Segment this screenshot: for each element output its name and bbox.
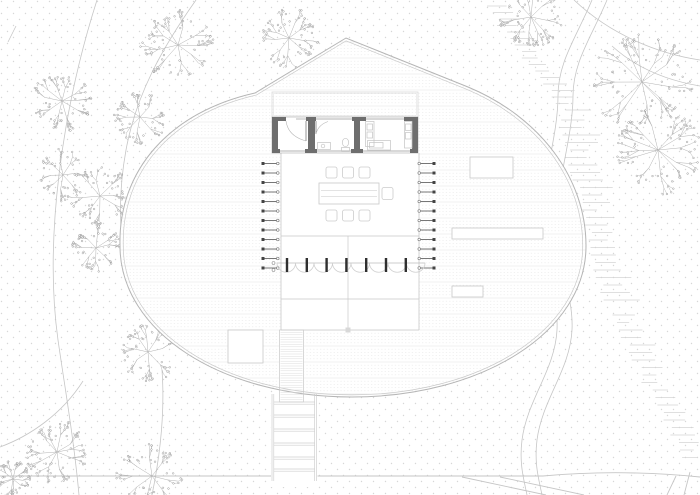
tree-dot (593, 85, 595, 87)
tree-dot (104, 173, 106, 175)
tick-circle-right (418, 200, 421, 203)
tree-dot (77, 436, 79, 438)
bench (452, 286, 483, 297)
tree-dot (159, 116, 161, 118)
tick-circle-right (418, 162, 421, 165)
tree-dot (162, 452, 164, 454)
tree-dot (132, 365, 134, 367)
tree-dot (150, 375, 152, 377)
tree-dot (137, 142, 139, 144)
tree-dot (48, 429, 50, 431)
tree-dot (121, 101, 123, 103)
tree-dot (99, 259, 101, 261)
tree-dot (158, 47, 160, 49)
tree-dot (657, 54, 659, 56)
building-wall (305, 149, 317, 153)
tree-dot (689, 151, 691, 153)
tree-dot (48, 480, 50, 482)
tree-dot (305, 40, 307, 42)
tree-dot (27, 485, 29, 487)
tree-dot (21, 484, 23, 486)
tree-dot (37, 475, 39, 477)
tick-square-right (433, 248, 436, 251)
tree-dot (621, 151, 623, 153)
tree-dot (109, 238, 111, 240)
tree-dot (691, 88, 693, 90)
tree-dot (668, 88, 670, 90)
tree-dot (689, 163, 691, 165)
building-wall (272, 117, 278, 153)
tree-dot (91, 223, 93, 225)
tree-dot (693, 127, 695, 129)
tree-dot (92, 265, 94, 267)
tree-dot (659, 47, 661, 49)
tree-dot (515, 31, 517, 33)
tree-dot (21, 475, 23, 477)
tree-dot (517, 21, 519, 23)
tree-dot (145, 375, 147, 377)
tree-dot (64, 429, 66, 431)
tree-dot (43, 113, 45, 115)
tree-dot (81, 445, 83, 447)
tree-dot (281, 9, 283, 11)
tree-dot (82, 463, 84, 465)
tree-dot (72, 128, 74, 130)
tree-dot (542, 36, 544, 38)
dining-chair (343, 167, 354, 178)
tree-dot (690, 89, 692, 91)
tree-dot (601, 81, 603, 83)
tree-dot (686, 128, 688, 130)
tree-dot (163, 456, 165, 458)
tree-dot (677, 170, 679, 172)
tree-dot (40, 179, 42, 181)
tick-circle-left (277, 229, 280, 232)
tree-dot (81, 87, 83, 89)
tree-dot (148, 493, 150, 495)
tree-dot (686, 141, 688, 143)
tree-dot (621, 157, 623, 159)
tree-dot (204, 43, 206, 45)
tree-dot (519, 11, 521, 13)
tree-dot (51, 439, 53, 441)
tree-dot (628, 122, 630, 124)
tree-dot (685, 124, 687, 126)
tree-dot (123, 478, 125, 480)
tick-square-left (262, 191, 265, 194)
tree-dot (78, 431, 80, 433)
tree-dot (51, 79, 53, 81)
tree-dot (626, 132, 628, 134)
tree-dot (19, 476, 21, 478)
tree-dot (47, 481, 49, 483)
tree-dot (167, 371, 169, 373)
tree-dot (670, 126, 672, 128)
tree-dot (181, 11, 183, 13)
tree-dot (142, 42, 144, 44)
tick-circle-left (277, 219, 280, 222)
tree-dot (71, 203, 73, 205)
tree-dot (627, 153, 629, 155)
canopy-post (365, 258, 367, 272)
tree-dot (283, 11, 285, 13)
tree-dot (30, 450, 32, 452)
tree-dot (202, 40, 204, 42)
tree-dot (29, 477, 31, 479)
tree-dot (117, 114, 119, 116)
tree-dot (542, 44, 544, 46)
tree-dot (281, 14, 283, 16)
tree-dot (518, 37, 520, 39)
tree-dot (508, 7, 510, 9)
tree-dot (153, 68, 155, 70)
tree-dot (26, 472, 28, 474)
tree-dot (278, 11, 280, 13)
tree-dot (628, 42, 630, 44)
tree-dot (63, 480, 65, 482)
tree-dot (532, 43, 534, 45)
tree-dot (88, 205, 90, 207)
tree-dot (83, 108, 85, 110)
tree-dot (128, 109, 130, 111)
bench (470, 157, 513, 178)
tree-dot (84, 237, 86, 239)
tree-dot (619, 162, 621, 164)
tree-dot (117, 185, 119, 187)
tree-dot (604, 50, 606, 52)
tree-dot (212, 39, 214, 41)
tree-dot (59, 427, 61, 429)
tree-dot (132, 371, 134, 373)
tree-dot (102, 233, 104, 235)
tree-dot (311, 45, 313, 47)
tree-dot (116, 194, 118, 196)
tree-dot (34, 87, 36, 89)
dining-table (319, 183, 379, 204)
tree-dot (52, 163, 54, 165)
tree-dot (676, 124, 678, 126)
building-wall (272, 149, 280, 153)
tree-dot (622, 38, 624, 40)
tree-dot (278, 30, 280, 32)
tree-dot (617, 142, 619, 144)
tree-dot (305, 52, 307, 54)
tree-dot (148, 379, 150, 381)
tree-dot (87, 114, 89, 116)
tree-dot (68, 477, 70, 479)
tree-dot (298, 17, 300, 19)
tree-dot (60, 119, 62, 121)
tick-square-left (262, 172, 265, 175)
tree-dot (74, 98, 76, 100)
tree-dot (197, 44, 199, 46)
tree-dot (140, 46, 142, 48)
tree-dot (158, 339, 160, 341)
tree-dot (39, 431, 41, 433)
tree-dot (630, 130, 632, 132)
tree-dot (168, 18, 170, 20)
tree-dot (123, 105, 125, 107)
tree-dot (272, 25, 274, 27)
tree-dot (141, 456, 143, 458)
tree-dot (129, 334, 131, 336)
tree-dot (674, 127, 676, 129)
tree-dot (113, 114, 115, 116)
tree-dot (110, 263, 112, 265)
tree-dot (662, 193, 664, 195)
tree-dot (166, 457, 168, 459)
tree-dot (142, 378, 144, 380)
tree-dot (88, 208, 90, 210)
tree-dot (630, 121, 632, 123)
tree-dot (634, 143, 636, 145)
tree-dot (165, 456, 167, 458)
tick-circle-right (418, 229, 421, 232)
tree-dot (93, 208, 95, 210)
tree-dot (169, 343, 171, 345)
tree-dot (59, 423, 61, 425)
tree-dot (148, 443, 150, 445)
tick-square-left (262, 257, 265, 260)
tree-dot (76, 191, 78, 193)
tree-dot (72, 113, 74, 115)
stairs-white (271, 394, 318, 487)
tree-dot (190, 21, 192, 23)
tree-dot (69, 457, 71, 459)
tree-dot (263, 31, 265, 33)
tree-dot (151, 33, 153, 35)
tree-dot (154, 27, 156, 29)
tree-dot (689, 81, 691, 83)
tree-dot (667, 107, 669, 109)
tree-dot (152, 121, 154, 123)
tree-dot (675, 117, 677, 119)
tree-dot (267, 22, 269, 24)
tree-dot (677, 52, 679, 54)
tree-dot (39, 470, 41, 472)
tree-dot (31, 454, 33, 456)
tree-dot (119, 120, 121, 122)
tree-dot (86, 174, 88, 176)
tree-dot (84, 83, 86, 85)
tree-dot (598, 57, 600, 59)
tree-dot (54, 78, 56, 80)
tree-dot (644, 122, 646, 124)
tree-dot (116, 477, 118, 479)
tree-dot (690, 125, 692, 127)
tree-dot (650, 105, 652, 107)
tree-dot (85, 100, 87, 102)
tree-dot (148, 365, 150, 367)
tree-dot (535, 43, 537, 45)
tick-circle-right (418, 257, 421, 260)
tree-dot (528, 39, 530, 41)
tree-dot (105, 254, 107, 256)
tree-dot (181, 479, 183, 481)
tree-dot (141, 337, 143, 339)
tree-dot (658, 39, 660, 41)
tree-dot (42, 160, 44, 162)
tree-dot (640, 137, 642, 139)
tree-dot (47, 476, 49, 478)
tree-dot (636, 175, 638, 177)
tree-dot (636, 127, 638, 129)
canopy-end-circle (272, 262, 275, 265)
tree-dot (277, 24, 279, 26)
tree-dot (91, 204, 93, 206)
tree-dot (162, 124, 164, 126)
tree-dot (28, 446, 30, 448)
tree-dot (667, 110, 669, 112)
tree-dot (263, 29, 265, 31)
tree-dot (194, 49, 196, 51)
building-wall (351, 149, 363, 153)
tree-dot (632, 41, 634, 43)
tree-dot (115, 241, 117, 243)
tree-dot (269, 29, 271, 31)
tree-dot (610, 115, 612, 117)
drawing-canvas (0, 0, 700, 495)
tree-dot (36, 87, 38, 89)
tree-dot (123, 352, 125, 354)
tree-dot (75, 158, 77, 160)
tree-dot (182, 20, 184, 22)
tree-dot (671, 50, 673, 52)
tick-circle-left (277, 238, 280, 241)
tree-dot (166, 472, 168, 474)
tree-dot (129, 123, 131, 125)
tree-dot (541, 39, 543, 41)
tree-dot (78, 199, 80, 201)
tree-dot (27, 476, 29, 478)
tree-dot (54, 123, 56, 125)
tick-square-left (262, 248, 265, 251)
tree-dot (79, 191, 81, 193)
tree-dot (26, 469, 28, 471)
tree-dot (278, 59, 280, 61)
tree-dot (519, 40, 521, 42)
tree-dot (617, 121, 619, 123)
tree-dot (107, 175, 109, 177)
tree-dot (121, 107, 123, 109)
tree-dot (202, 65, 204, 67)
tick-circle-left (277, 172, 280, 175)
tree-dot (43, 167, 45, 169)
tree-dot (81, 240, 83, 242)
tree-dot (72, 164, 74, 166)
tree-dot (162, 487, 164, 489)
tree-dot (210, 36, 212, 38)
tree-dot (312, 26, 314, 28)
tree-dot (667, 185, 669, 187)
tree-dot (300, 53, 302, 55)
tree-dot (304, 24, 306, 26)
tree-dot (633, 38, 635, 40)
tree-dot (181, 15, 183, 17)
tree-dot (661, 81, 663, 83)
tree-dot (670, 191, 672, 193)
tree-dot (154, 41, 156, 43)
tree-dot (177, 11, 179, 13)
tree-dot (263, 37, 265, 39)
tree-dot (683, 90, 685, 92)
tree-dot (37, 83, 39, 85)
tree-dot (266, 33, 268, 35)
tree-dot (113, 235, 115, 237)
tree-dot (67, 196, 69, 198)
tree-dot (311, 32, 313, 34)
tree-dot (134, 333, 136, 335)
tree-dot (67, 187, 69, 189)
tree-dot (529, 44, 531, 46)
tree-dot (628, 59, 630, 61)
tree-dot (166, 461, 168, 463)
tree-dot (556, 22, 558, 24)
tree-dot (120, 177, 122, 179)
tree-dot (85, 91, 87, 93)
tree-dot (67, 86, 69, 88)
tick-square-left (262, 219, 265, 222)
tree-dot (53, 192, 55, 194)
tree-dot (500, 24, 502, 26)
tree-dot (122, 196, 124, 198)
tree-dot (678, 134, 680, 136)
tree-dot (163, 26, 165, 28)
tree-dot (138, 460, 140, 462)
terrace-white (281, 153, 419, 330)
tree-dot (673, 188, 675, 190)
tree-dot (55, 435, 57, 437)
tree-dot (109, 260, 111, 262)
tree-dot (634, 47, 636, 49)
tree-dot (135, 345, 137, 347)
canopy-post (345, 258, 347, 272)
tree-dot (554, 0, 556, 1)
tree-dot (632, 161, 634, 163)
tree-dot (642, 48, 644, 50)
tree-dot (64, 424, 66, 426)
tree-dot (120, 105, 122, 107)
dining-chair (359, 167, 370, 178)
tree-dot (15, 489, 17, 491)
tree-dot (518, 23, 520, 25)
canopy-post (325, 258, 327, 272)
tree-dot (49, 426, 51, 428)
tree-dot (16, 492, 18, 494)
tree-dot (665, 49, 667, 51)
canopy-post (405, 258, 407, 272)
canopy-post (306, 258, 308, 272)
tree-dot (82, 215, 84, 217)
tree-dot (93, 182, 95, 184)
tree-dot (116, 117, 118, 119)
tree-dot (50, 472, 52, 474)
tree-dot (42, 177, 44, 179)
tick-circle-right (418, 267, 421, 270)
tree-dot (74, 184, 76, 186)
tree-dot (10, 492, 12, 494)
tree-dot (212, 42, 214, 44)
tree-dot (29, 465, 31, 467)
tree-dot (285, 13, 287, 15)
tree-dot (139, 326, 141, 328)
tree-dot (155, 70, 157, 72)
tree-dot (48, 161, 50, 163)
tick-circle-left (277, 181, 280, 184)
tree-dot (74, 174, 76, 176)
tree-dot (161, 132, 163, 134)
tree-dot (131, 368, 133, 370)
